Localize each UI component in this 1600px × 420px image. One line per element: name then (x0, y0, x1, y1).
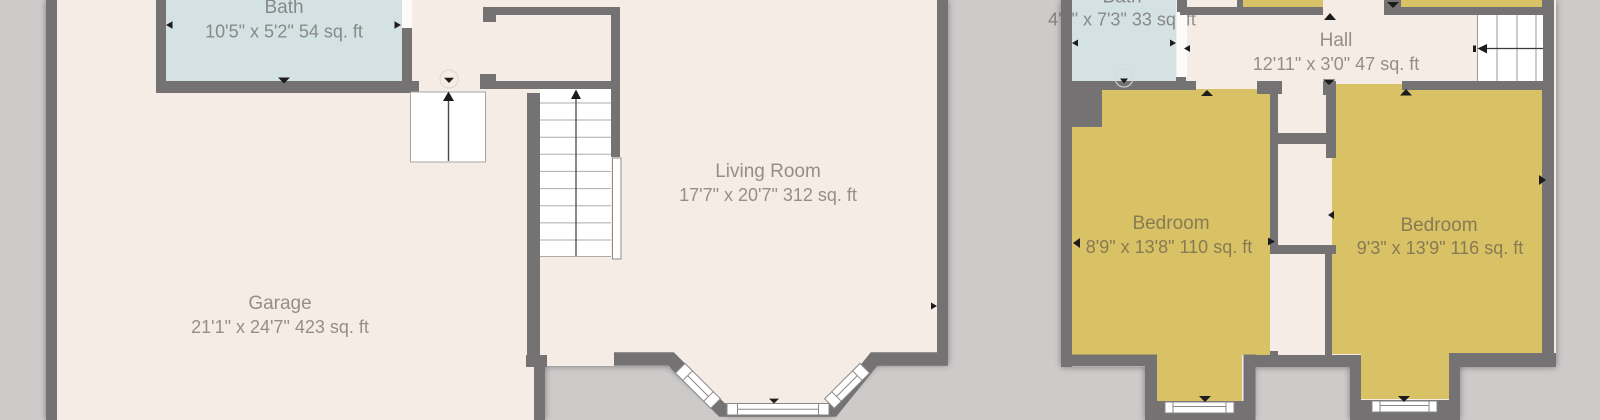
svg-text:Bedroom: Bedroom (1132, 213, 1209, 234)
svg-text:Hall: Hall (1320, 30, 1353, 51)
svg-text:10'5" x 5'2" 54 sq. ft: 10'5" x 5'2" 54 sq. ft (205, 22, 363, 42)
svg-text:9'3" x 13'9" 116 sq. ft: 9'3" x 13'9" 116 sq. ft (1357, 238, 1523, 258)
svg-text:Bath: Bath (264, 0, 303, 18)
svg-text:12'11" x 3'0" 47 sq. ft: 12'11" x 3'0" 47 sq. ft (1253, 54, 1419, 74)
svg-text:21'1" x 24'7" 423 sq. ft: 21'1" x 24'7" 423 sq. ft (191, 317, 369, 337)
svg-text:Living Room: Living Room (715, 161, 821, 182)
svg-text:Bath: Bath (1102, 0, 1141, 8)
svg-text:17'7" x 20'7" 312 sq. ft: 17'7" x 20'7" 312 sq. ft (679, 185, 857, 205)
svg-text:Bedroom: Bedroom (1400, 215, 1477, 236)
svg-text:Garage: Garage (248, 293, 311, 314)
svg-text:8'9" x 13'8" 110 sq. ft: 8'9" x 13'8" 110 sq. ft (1086, 237, 1252, 257)
